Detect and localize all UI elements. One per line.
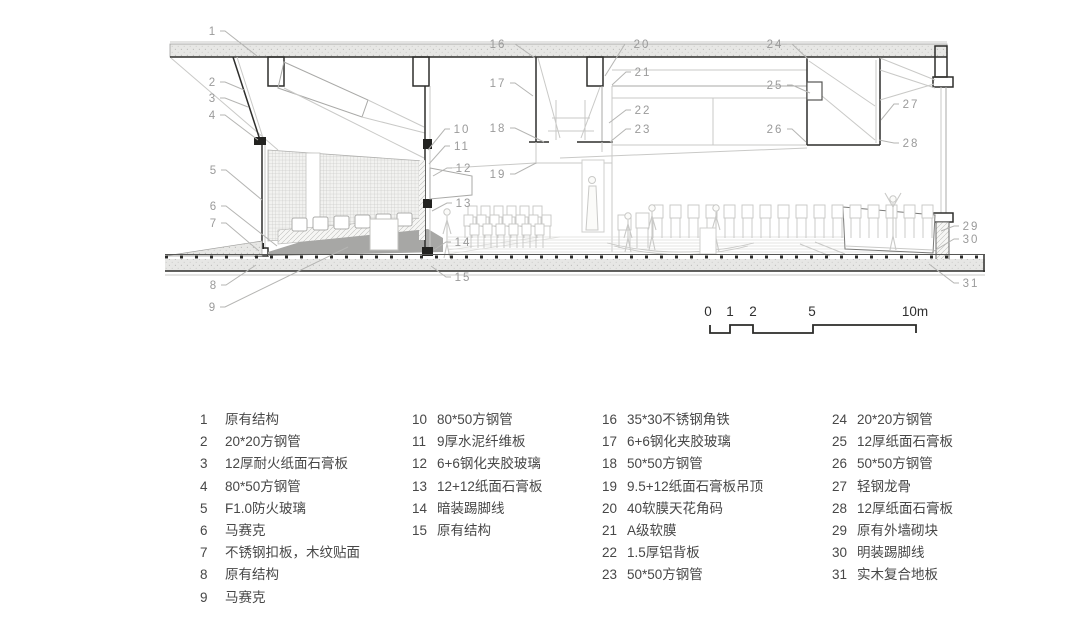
legend-item-5: 5F1.0防火玻璃 [200,498,360,520]
legend-item-label: 20*20方钢管 [857,412,933,427]
legend-item-3: 312厚耐火纸面石膏板 [200,453,360,475]
legend-item-label: 不锈钢扣板，木纹贴面 [225,545,360,560]
legend-item-label: 12厚纸面石膏板 [857,434,953,449]
legend-item-number: 28 [832,498,857,520]
legend-item-number: 11 [412,431,437,453]
legend-item-number: 15 [412,520,437,542]
legend-item-14: 14暗装踢脚线 [412,498,542,520]
legend-item-label: 1.5厚铝背板 [627,545,700,560]
legend-item-label: 80*50方钢管 [225,479,301,494]
legend-item-22: 221.5厚铝背板 [602,542,763,564]
legend: 1原有结构220*20方钢管312厚耐火纸面石膏板480*50方钢管5F1.0防… [0,0,1080,619]
legend-item-label: 原有外墙砌块 [857,523,938,538]
legend-item-label: 35*30不锈钢角铁 [627,412,730,427]
legend-column-3: 1635*30不锈钢角铁176+6钢化夹胶玻璃1850*50方钢管199.5+1… [602,409,763,587]
legend-item-label: 原有结构 [225,412,279,427]
legend-item-number: 20 [602,498,627,520]
legend-item-number: 25 [832,431,857,453]
legend-item-number: 8 [200,564,225,586]
legend-item-6: 6马赛克 [200,520,360,542]
legend-item-label: 原有结构 [437,523,491,538]
legend-item-16: 1635*30不锈钢角铁 [602,409,763,431]
legend-item-number: 18 [602,453,627,475]
legend-item-label: 50*50方钢管 [627,456,703,471]
legend-item-label: F1.0防火玻璃 [225,501,306,516]
legend-item-number: 4 [200,476,225,498]
legend-item-number: 10 [412,409,437,431]
legend-item-26: 2650*50方钢管 [832,453,953,475]
legend-item-label: 12+12纸面石膏板 [437,479,542,494]
legend-item-18: 1850*50方钢管 [602,453,763,475]
legend-item-number: 23 [602,564,627,586]
legend-item-label: 20*20方钢管 [225,434,301,449]
legend-item-27: 27轻钢龙骨 [832,476,953,498]
legend-item-number: 13 [412,476,437,498]
legend-item-label: 实木复合地板 [857,567,938,582]
legend-item-label: 马赛克 [225,590,266,605]
legend-item-31: 31实木复合地板 [832,564,953,586]
page: 1234567891011121314151617181920212223242… [0,0,1080,619]
legend-column-1: 1原有结构220*20方钢管312厚耐火纸面石膏板480*50方钢管5F1.0防… [200,409,360,609]
legend-item-13: 1312+12纸面石膏板 [412,476,542,498]
legend-item-28: 2812厚纸面石膏板 [832,498,953,520]
legend-item-number: 19 [602,476,627,498]
legend-item-number: 6 [200,520,225,542]
legend-item-label: 马赛克 [225,523,266,538]
legend-item-label: 6+6钢化夹胶玻璃 [627,434,731,449]
legend-item-12: 126+6钢化夹胶玻璃 [412,453,542,475]
legend-item-24: 2420*20方钢管 [832,409,953,431]
legend-item-19: 199.5+12纸面石膏板吊顶 [602,476,763,498]
legend-item-number: 9 [200,587,225,609]
legend-item-label: 轻钢龙骨 [857,479,911,494]
legend-item-8: 8原有结构 [200,564,360,586]
legend-item-label: 9厚水泥纤维板 [437,434,526,449]
legend-item-1: 1原有结构 [200,409,360,431]
legend-column-2: 1080*50方钢管119厚水泥纤维板126+6钢化夹胶玻璃1312+12纸面石… [412,409,542,542]
legend-item-30: 30明装踢脚线 [832,542,953,564]
legend-item-10: 1080*50方钢管 [412,409,542,431]
legend-item-label: 50*50方钢管 [857,456,933,471]
legend-item-number: 3 [200,453,225,475]
legend-item-number: 14 [412,498,437,520]
legend-item-number: 30 [832,542,857,564]
legend-item-4: 480*50方钢管 [200,476,360,498]
legend-item-7: 7不锈钢扣板，木纹贴面 [200,542,360,564]
legend-item-label: 80*50方钢管 [437,412,513,427]
legend-item-label: A级软膜 [627,523,677,538]
legend-item-2: 220*20方钢管 [200,431,360,453]
legend-item-number: 27 [832,476,857,498]
legend-item-label: 40软膜天花角码 [627,501,723,516]
legend-item-number: 24 [832,409,857,431]
legend-item-number: 22 [602,542,627,564]
legend-item-number: 29 [832,520,857,542]
legend-item-label: 原有结构 [225,567,279,582]
legend-item-number: 16 [602,409,627,431]
legend-item-11: 119厚水泥纤维板 [412,431,542,453]
legend-item-number: 17 [602,431,627,453]
legend-item-number: 5 [200,498,225,520]
legend-item-number: 2 [200,431,225,453]
legend-item-label: 6+6钢化夹胶玻璃 [437,456,541,471]
legend-item-20: 2040软膜天花角码 [602,498,763,520]
legend-item-29: 29原有外墙砌块 [832,520,953,542]
legend-item-number: 1 [200,409,225,431]
legend-item-label: 暗装踢脚线 [437,501,505,516]
legend-item-number: 31 [832,564,857,586]
legend-item-label: 50*50方钢管 [627,567,703,582]
legend-item-21: 21A级软膜 [602,520,763,542]
legend-item-label: 12厚纸面石膏板 [857,501,953,516]
legend-item-9: 9马赛克 [200,587,360,609]
legend-item-17: 176+6钢化夹胶玻璃 [602,431,763,453]
legend-item-number: 26 [832,453,857,475]
legend-item-15: 15原有结构 [412,520,542,542]
legend-item-label: 明装踢脚线 [857,545,925,560]
legend-item-number: 21 [602,520,627,542]
legend-item-label: 9.5+12纸面石膏板吊顶 [627,479,763,494]
legend-item-number: 7 [200,542,225,564]
legend-item-number: 12 [412,453,437,475]
legend-item-25: 2512厚纸面石膏板 [832,431,953,453]
legend-item-label: 12厚耐火纸面石膏板 [225,456,348,471]
legend-item-23: 2350*50方钢管 [602,564,763,586]
legend-column-4: 2420*20方钢管2512厚纸面石膏板2650*50方钢管27轻钢龙骨2812… [832,409,953,587]
